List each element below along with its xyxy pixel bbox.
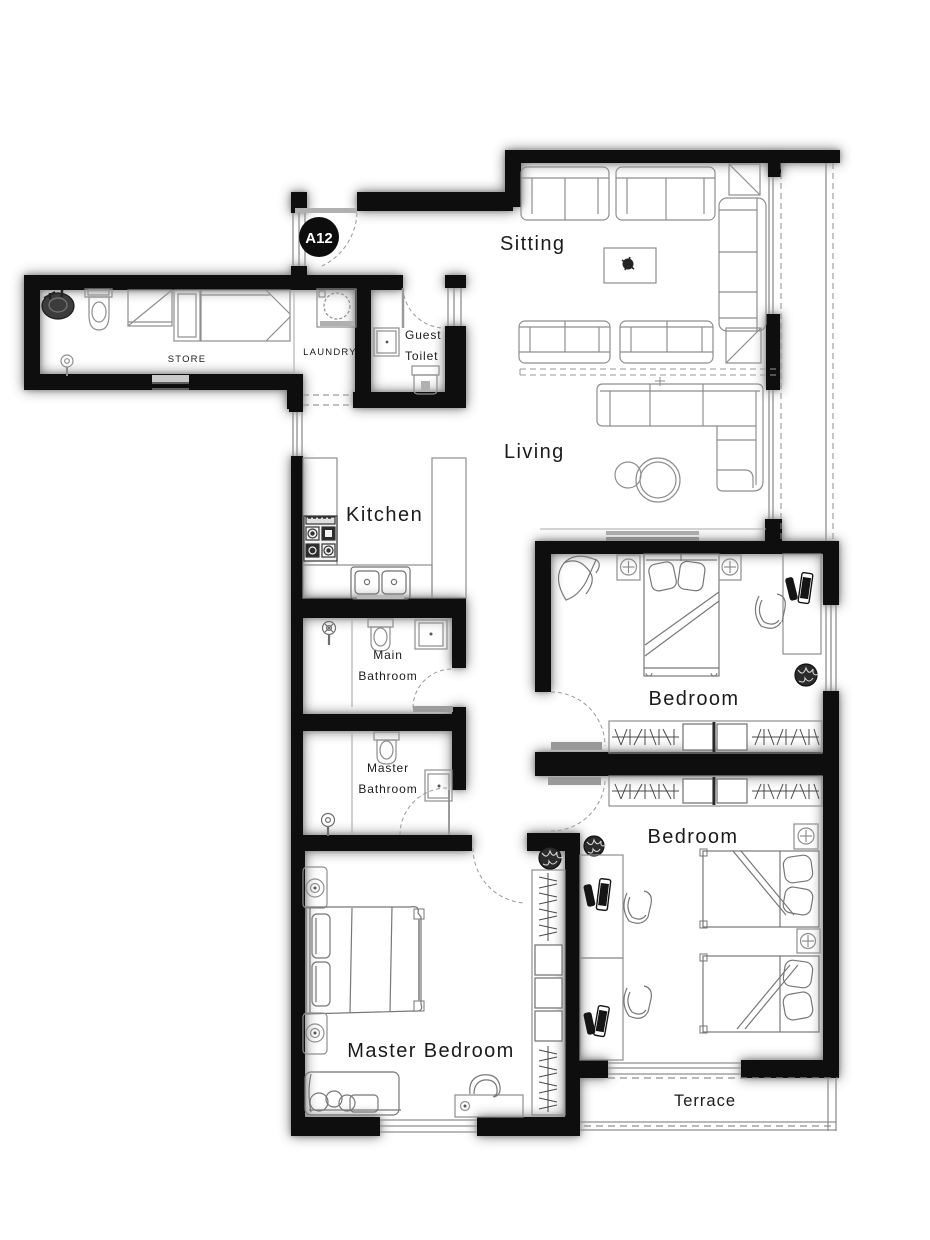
svg-text:Bathroom: Bathroom [358, 782, 417, 796]
svg-text:A12: A12 [305, 230, 333, 247]
svg-text:Main: Main [373, 648, 403, 662]
svg-text:STORE: STORE [168, 354, 207, 365]
svg-text:Kitchen: Kitchen [346, 504, 423, 526]
svg-text:Master Bedroom: Master Bedroom [347, 1040, 514, 1062]
svg-text:Sitting: Sitting [500, 233, 565, 255]
svg-text:LAUNDRY: LAUNDRY [303, 347, 357, 358]
svg-text:Master: Master [367, 761, 409, 775]
svg-text:Living: Living [504, 441, 565, 463]
svg-text:Bedroom: Bedroom [648, 826, 739, 848]
svg-text:Toilet: Toilet [405, 349, 438, 363]
svg-text:Guest: Guest [405, 328, 442, 342]
svg-text:Bathroom: Bathroom [358, 669, 417, 683]
svg-text:Bedroom: Bedroom [649, 688, 740, 710]
svg-text:Terrace: Terrace [674, 1092, 736, 1110]
